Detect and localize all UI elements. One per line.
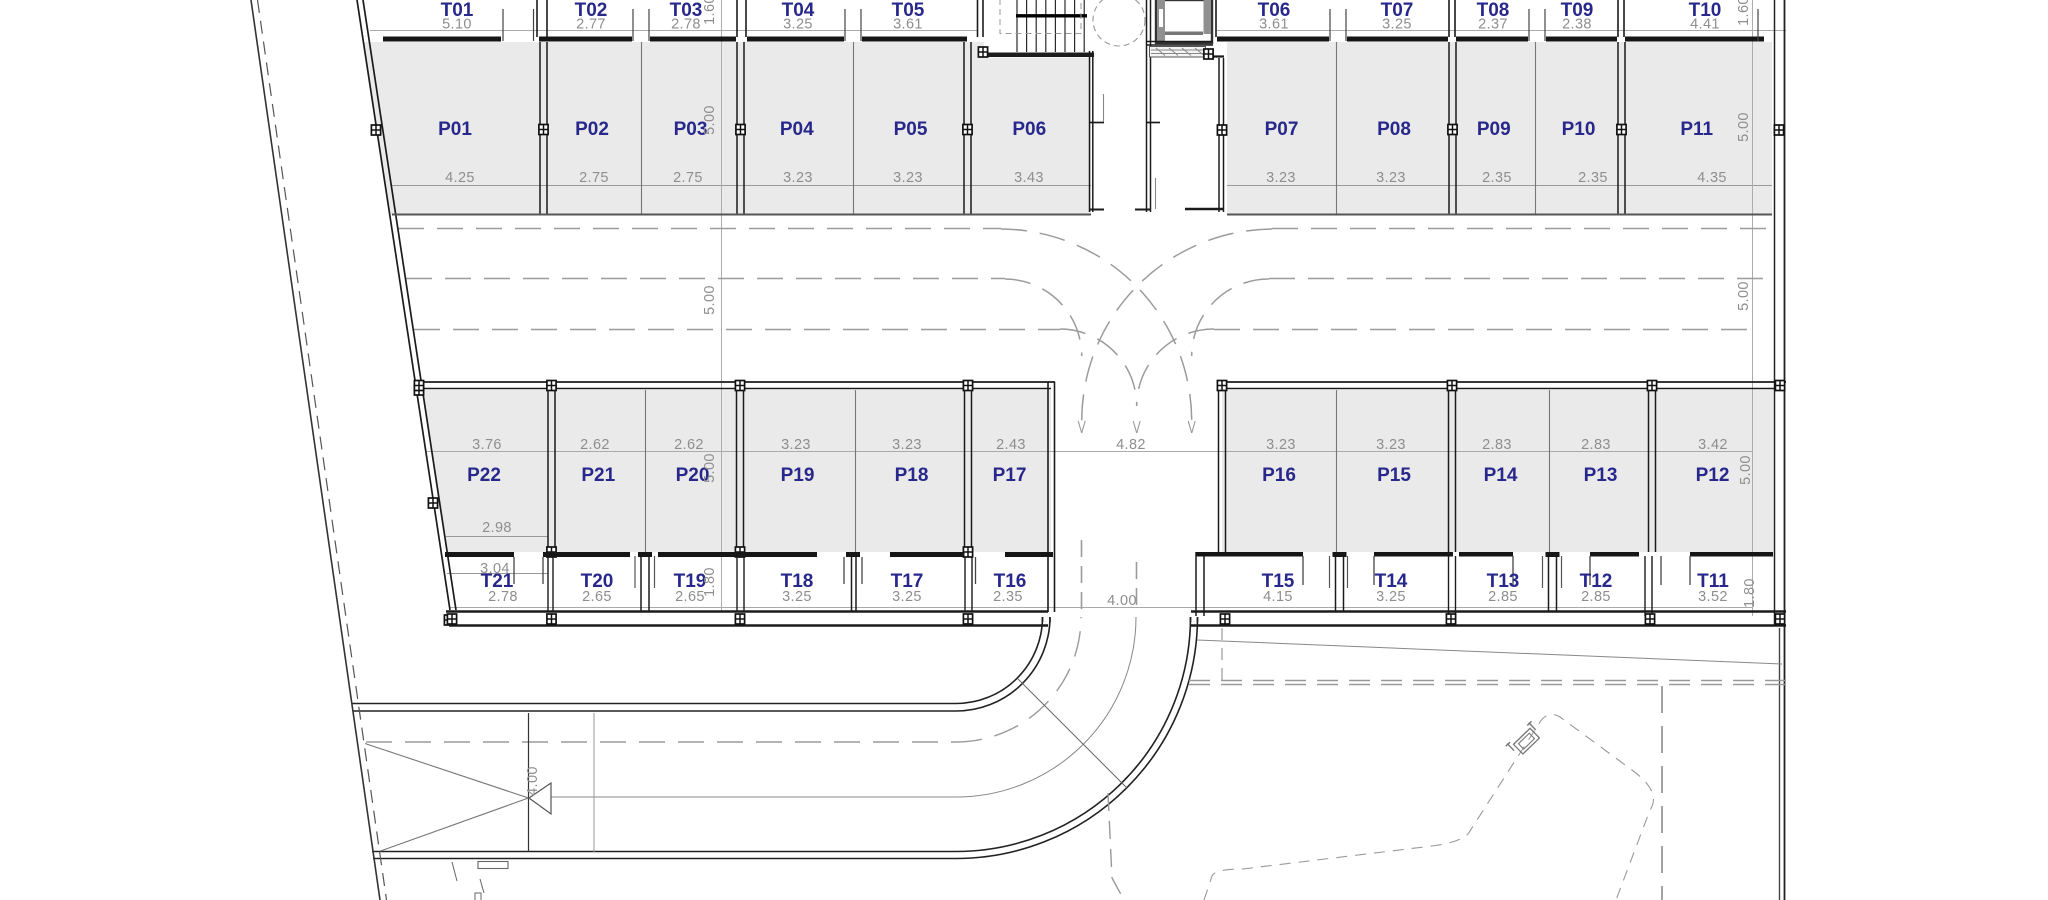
svg-text:P14: P14 xyxy=(1484,465,1518,486)
svg-text:P21: P21 xyxy=(581,465,615,486)
svg-text:2.85: 2.85 xyxy=(1581,589,1611,605)
svg-text:4.00: 4.00 xyxy=(1107,593,1137,609)
svg-text:3.76: 3.76 xyxy=(472,437,502,453)
svg-text:3.42: 3.42 xyxy=(1698,437,1728,453)
svg-text:3.23: 3.23 xyxy=(1376,437,1406,453)
svg-text:5.00: 5.00 xyxy=(1736,112,1752,142)
svg-text:1.80: 1.80 xyxy=(1742,578,1758,608)
svg-text:P02: P02 xyxy=(575,119,609,140)
svg-text:3.61: 3.61 xyxy=(893,17,923,33)
svg-text:3.25: 3.25 xyxy=(782,589,812,605)
svg-text:3.25: 3.25 xyxy=(1382,17,1412,33)
svg-text:P15: P15 xyxy=(1377,465,1411,486)
svg-text:3.23: 3.23 xyxy=(893,170,923,186)
svg-text:2.83: 2.83 xyxy=(1482,437,1512,453)
svg-text:5.00: 5.00 xyxy=(1738,455,1754,485)
svg-text:P06: P06 xyxy=(1012,119,1046,140)
svg-text:4.25: 4.25 xyxy=(445,170,475,186)
svg-text:1.60: 1.60 xyxy=(1736,0,1752,26)
svg-text:2.77: 2.77 xyxy=(576,17,606,33)
svg-text:3.52: 3.52 xyxy=(1698,589,1728,605)
svg-text:2.85: 2.85 xyxy=(1488,589,1518,605)
svg-text:P18: P18 xyxy=(895,465,929,486)
svg-text:P13: P13 xyxy=(1584,465,1618,486)
svg-text:P10: P10 xyxy=(1562,119,1596,140)
svg-text:3.43: 3.43 xyxy=(1014,170,1044,186)
svg-text:2.65: 2.65 xyxy=(675,589,705,605)
svg-text:3.23: 3.23 xyxy=(1266,170,1296,186)
svg-text:P19: P19 xyxy=(781,465,815,486)
svg-text:4.00: 4.00 xyxy=(525,766,541,796)
svg-text:P01: P01 xyxy=(438,119,472,140)
svg-text:2.62: 2.62 xyxy=(674,437,704,453)
svg-text:2.37: 2.37 xyxy=(1478,17,1508,33)
svg-text:2.75: 2.75 xyxy=(579,170,609,186)
svg-text:2.35: 2.35 xyxy=(1482,170,1512,186)
svg-text:2.75: 2.75 xyxy=(673,170,703,186)
svg-text:P11: P11 xyxy=(1680,119,1713,140)
svg-text:2.35: 2.35 xyxy=(993,589,1023,605)
svg-text:4.82: 4.82 xyxy=(1116,437,1146,453)
svg-text:2.38: 2.38 xyxy=(1562,17,1592,33)
svg-text:P16: P16 xyxy=(1262,465,1296,486)
svg-text:5.00: 5.00 xyxy=(702,105,718,135)
svg-text:2.35: 2.35 xyxy=(1578,170,1608,186)
svg-text:5.00: 5.00 xyxy=(702,453,718,483)
svg-text:P22: P22 xyxy=(467,465,501,486)
svg-text:3.25: 3.25 xyxy=(892,589,922,605)
svg-text:3.25: 3.25 xyxy=(783,17,813,33)
svg-text:3.23: 3.23 xyxy=(781,437,811,453)
svg-text:4.15: 4.15 xyxy=(1263,589,1293,605)
svg-text:4.41: 4.41 xyxy=(1690,17,1720,33)
svg-text:2.43: 2.43 xyxy=(996,437,1026,453)
svg-text:3.23: 3.23 xyxy=(783,170,813,186)
svg-text:2.78: 2.78 xyxy=(488,589,518,605)
svg-text:2.83: 2.83 xyxy=(1581,437,1611,453)
svg-text:3.25: 3.25 xyxy=(1376,589,1406,605)
svg-text:3.23: 3.23 xyxy=(892,437,922,453)
svg-text:P05: P05 xyxy=(894,119,928,140)
svg-text:5.00: 5.00 xyxy=(702,285,718,315)
svg-text:2.98: 2.98 xyxy=(482,520,512,536)
svg-text:1.80: 1.80 xyxy=(702,567,718,597)
svg-text:2.65: 2.65 xyxy=(582,589,612,605)
svg-text:P09: P09 xyxy=(1477,119,1511,140)
svg-text:2.62: 2.62 xyxy=(580,437,610,453)
svg-text:P12: P12 xyxy=(1696,465,1730,486)
svg-text:1.60: 1.60 xyxy=(702,0,718,25)
svg-text:5.10: 5.10 xyxy=(442,17,472,33)
svg-text:3.23: 3.23 xyxy=(1266,437,1296,453)
svg-text:P04: P04 xyxy=(780,119,814,140)
svg-text:P08: P08 xyxy=(1377,119,1411,140)
svg-text:2.78: 2.78 xyxy=(671,17,701,33)
svg-text:3.61: 3.61 xyxy=(1259,17,1289,33)
svg-text:P07: P07 xyxy=(1265,119,1299,140)
svg-text:4.35: 4.35 xyxy=(1697,170,1727,186)
svg-text:5.00: 5.00 xyxy=(1736,281,1752,311)
svg-text:P17: P17 xyxy=(993,465,1027,486)
svg-text:3.23: 3.23 xyxy=(1376,170,1406,186)
